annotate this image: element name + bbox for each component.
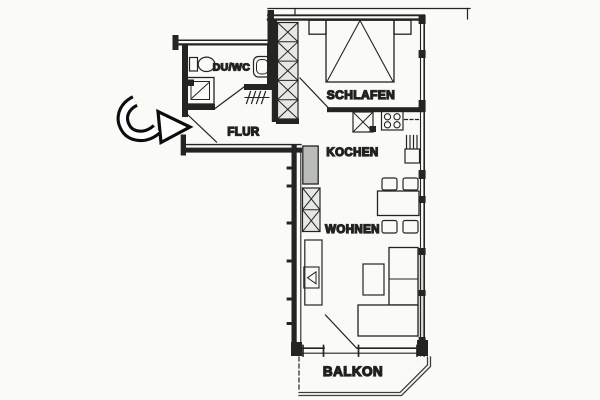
wall-closet-left [272,20,277,122]
wall-duwc-sink-bottom [244,84,273,90]
wall-duwc-bottom [182,104,215,110]
background [0,0,600,400]
tall-cabinet [303,146,318,184]
floor-plan-page: DU/WC FLUR SCHLAFEN KOCHEN WOHNEN BALKON [0,0,600,400]
room-label-schlafen: SCHLAFEN [327,88,396,102]
floor-plan-drawing: DU/WC FLUR SCHLAFEN KOCHEN WOHNEN BALKON [0,0,600,400]
room-label-wohnen: WOHNEN [325,224,380,236]
faucet [370,126,377,132]
room-label-kochen: KOCHEN [326,147,378,159]
wardrobe-tall [278,23,299,120]
room-label-flur: FLUR [227,127,260,139]
room-label-balkon: BALKON [323,364,383,379]
wall-flur-left-cap [181,135,186,156]
wardrobe-small [303,188,321,232]
wall-flur-bottom-inner [186,148,302,153]
shower-fixture [188,80,194,87]
wall-bottom-left-corner [291,342,302,356]
room-label-du-wc: DU/WC [213,62,251,74]
wall-schlafen-kochen [327,107,424,112]
wall-duwc-top-cap [173,35,179,50]
